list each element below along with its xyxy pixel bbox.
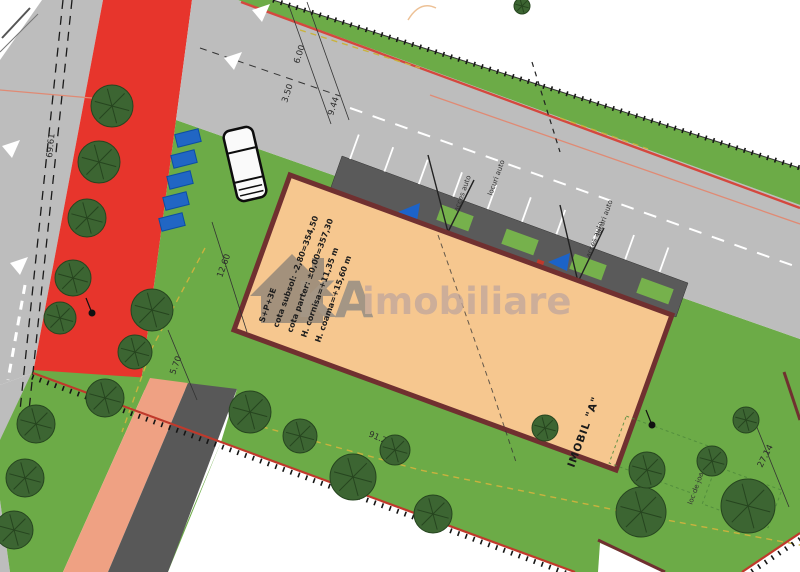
tree-icon (414, 495, 452, 533)
tree-icon (514, 0, 530, 14)
tree-icon (721, 479, 775, 533)
tree-icon (229, 391, 271, 433)
survey-point-icon (89, 310, 96, 317)
tree-icon (0, 511, 33, 549)
tree-icon (131, 289, 173, 331)
tree-icon (697, 446, 727, 476)
site-plan-svg: KA imobiliare S+P+3E cota subsol: -2,80=… (0, 0, 800, 572)
tree-icon (532, 415, 558, 441)
tree-icon (17, 405, 55, 443)
tree-icon (55, 260, 91, 296)
site-plan-screenshot: KA imobiliare S+P+3E cota subsol: -2,80=… (0, 0, 800, 572)
tree-icon (118, 335, 152, 369)
tree-icon (629, 452, 665, 488)
tree-icon (380, 435, 410, 465)
tree-icon (733, 407, 759, 433)
tree-icon (68, 199, 106, 237)
survey-point-icon (649, 422, 656, 429)
tree-icon (91, 85, 133, 127)
tree-icon (78, 141, 120, 183)
tree-icon (86, 379, 124, 417)
tree-icon (283, 419, 317, 453)
tree-icon (6, 459, 44, 497)
watermark-text: imobiliare (362, 280, 572, 323)
tree-icon (44, 302, 76, 334)
tree-icon (330, 454, 376, 500)
tree-icon (616, 487, 666, 537)
